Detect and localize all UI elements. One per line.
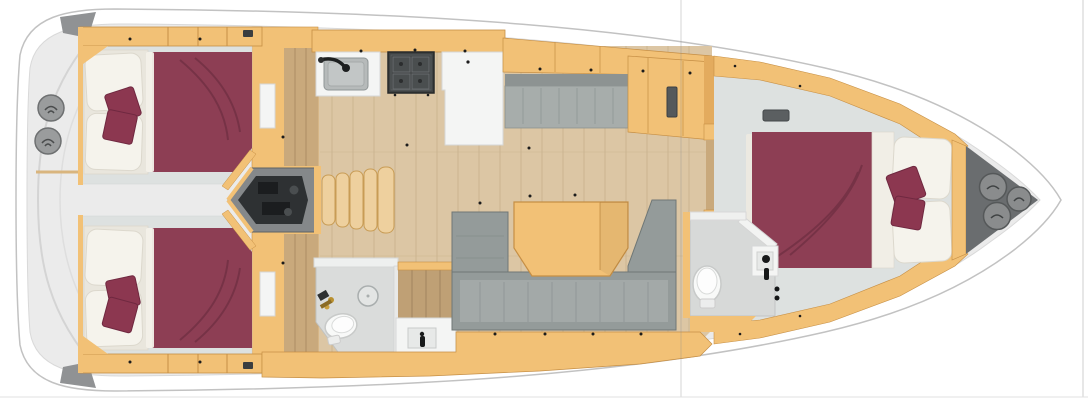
yacht-floorplan-canvas [0,0,1088,400]
bow-bulkhead [952,140,966,260]
sheet-fold [146,228,154,348]
vanity-faucet [762,255,770,263]
engine-detail [290,186,299,195]
companionway-stairs [322,167,394,233]
hatch-latch [243,362,253,369]
bow-hatch-2 [1007,187,1031,211]
drain-center [367,295,370,298]
aft-cabin-starboard [78,210,262,373]
stair-step [322,175,335,225]
toilet-seat [697,268,717,294]
bedspread [152,52,252,172]
engine-bay-wall [314,166,321,234]
throw-pillow [891,196,926,231]
stern-hatch-2 [35,128,61,154]
sheet-fold [146,52,154,172]
cabin-vent [763,110,789,121]
sofa-seat-cushion [460,280,668,322]
wardrobe-vent [667,87,677,117]
fridge-counter [442,52,503,145]
locker-door-port [260,84,275,128]
cabin-shelf-band [80,354,262,373]
shower-control [775,287,780,292]
vanity-faucet-handle [420,336,425,347]
aft-head [314,258,458,354]
yacht-floorplan [0,0,1088,400]
counter-knob [466,60,469,63]
stair-step [378,167,394,233]
bow-hatch-1 [980,174,1007,201]
engine-detail [258,182,278,194]
head-top-wall [314,258,398,267]
faucet-knob [342,64,350,72]
aft-corridor-port-floor [284,48,318,166]
hatch-latch [243,30,253,37]
sheet-fold [872,132,894,268]
vanity-faucet [420,332,424,336]
aft-corridor-starboard-floor [284,234,318,352]
bow-hatch-3 [984,203,1011,230]
cabin-shelf-band [80,27,262,46]
stair-step [364,169,377,231]
vanity-faucet-handle [764,268,769,280]
throw-pillow [102,109,138,145]
head-side-wall [683,212,690,318]
sink-room-top-shelf [398,262,458,270]
shower-control [775,296,780,301]
locker-door-starboard [260,272,275,316]
cabin-side-wall [78,215,83,373]
galley-upper-band [312,30,505,52]
aft-cabin-port [78,27,262,190]
stair-step [336,173,349,227]
cabin-side-wall [78,27,83,185]
stove [388,52,434,93]
toilet-base [700,299,715,308]
stair-step [350,171,363,229]
stern-hatch-1 [38,95,64,121]
bedspread [152,228,252,348]
engine-detail [284,208,292,216]
head-top-wall [690,212,746,220]
faucet-base [318,57,324,63]
